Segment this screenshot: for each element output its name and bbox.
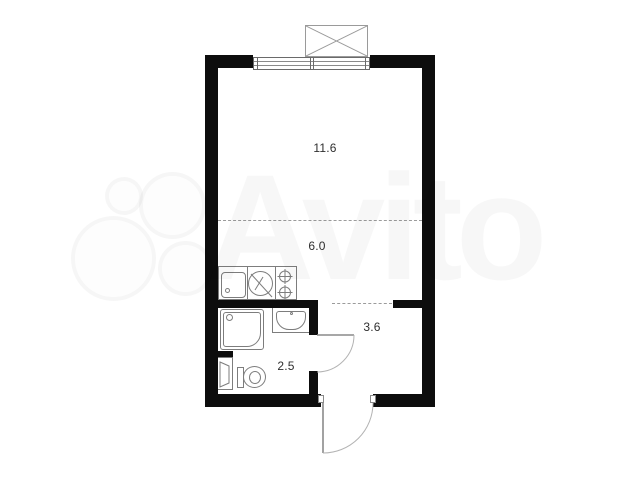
- room-label-bathroom: 2.5: [261, 359, 311, 373]
- wall-kitchen-bath: [218, 300, 311, 308]
- wall-hall-right: [393, 300, 422, 308]
- avito-logo-circle-right: [139, 172, 206, 239]
- zone-divider-living-kitchen: [218, 220, 422, 221]
- laundry-unit-icon: [216, 357, 233, 390]
- floorplan: 11.6 6.0 3.6 2.5 Avito: [0, 0, 640, 480]
- entrance-door-jamb-left: [318, 395, 324, 403]
- wall-bottom-left: [205, 394, 321, 407]
- avito-logo-circle-small: [105, 177, 143, 215]
- entrance-door: [321, 403, 377, 457]
- room-label-living: 11.6: [300, 141, 350, 155]
- zone-divider-kitchen-hallway: [332, 303, 392, 304]
- wall-right: [422, 55, 435, 407]
- wall-top-right: [370, 55, 435, 68]
- kitchen-sink-icon: [221, 272, 246, 298]
- wall-bath-hall-upper: [309, 300, 318, 335]
- washing-machine-icon: [246, 267, 275, 300]
- avito-logo-circle-large: [71, 216, 156, 301]
- bathroom-door: [317, 334, 359, 376]
- wall-left: [205, 55, 218, 407]
- window: [253, 57, 370, 70]
- room-label-hallway: 3.6: [347, 320, 397, 334]
- wall-bottom-right: [373, 394, 435, 407]
- kitchen-sink-drain: [225, 288, 230, 293]
- room-label-kitchen: 6.0: [292, 239, 342, 253]
- shower-drain: [226, 314, 233, 321]
- stove-burners-icon: [274, 266, 297, 300]
- entrance-door-jamb-right: [370, 395, 376, 403]
- washbasin-icon: [272, 306, 310, 333]
- wall-bath-stub: [218, 351, 233, 357]
- wall-top-left: [205, 55, 253, 68]
- vent-shaft-icon: [305, 25, 368, 57]
